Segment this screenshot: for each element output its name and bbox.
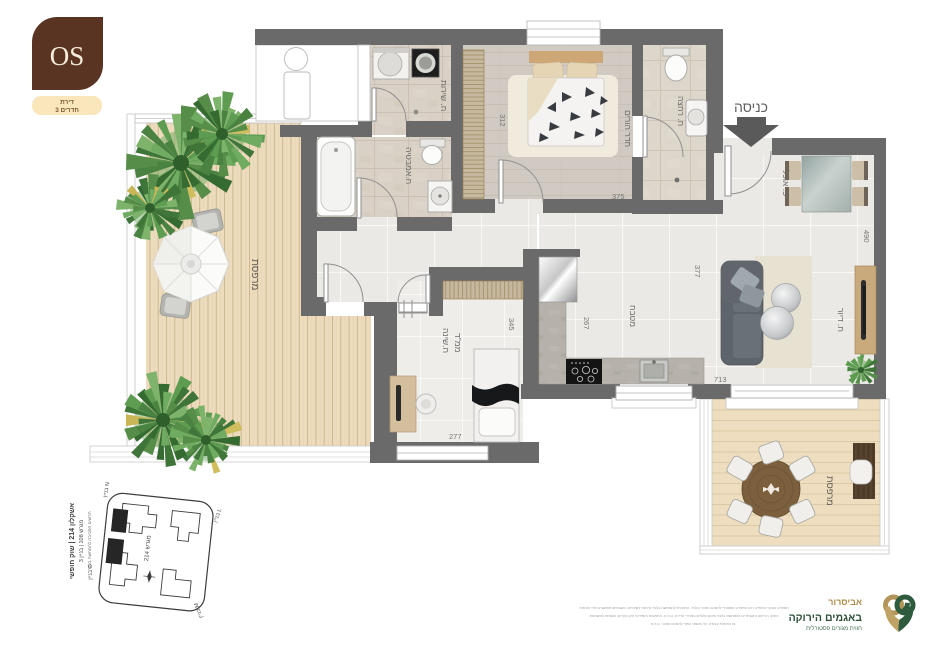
- svg-text:צו התחלת עבודה. כל האמור כפוף: צו התחלת עבודה. כל האמור כפוף להסכם המכר…: [651, 622, 736, 626]
- svg-text:277: 277: [449, 432, 462, 441]
- svg-text:3 חדרים: 3 חדרים: [55, 107, 79, 114]
- svg-text:345: 345: [507, 318, 516, 331]
- svg-text:מרפסת: מרפסת: [824, 476, 835, 506]
- svg-text:377: 377: [693, 265, 702, 278]
- svg-text:המפרט הטכני המחייב הינו המפרט: המפרט הטכני המחייב הינו המפרט המצורף להס…: [579, 606, 789, 610]
- svg-text:ח. רחצה: ח. רחצה: [676, 96, 686, 126]
- svg-text:תרשים הסביבה להמחשה בלבד: תרשים הסביבה להמחשה בלבד: [87, 511, 92, 570]
- svg-text:חדר הורים: חדר הורים: [623, 110, 633, 147]
- svg-text:חווית מגורים פסטורלית: חווית מגורים פסטורלית: [806, 625, 862, 632]
- svg-text:713: 713: [714, 375, 727, 384]
- svg-text:375: 375: [612, 192, 625, 201]
- svg-text:ח.אמבטיה: ח.אמבטיה: [404, 147, 414, 184]
- svg-text:490: 490: [862, 230, 871, 243]
- svg-text:החוק. הריהוט והאביזרים להמחשה: החוק. הריהוט והאביזרים להמחשה בלבד ואינם…: [589, 614, 779, 618]
- svg-text:מגרש 108 | בניין 3: מגרש 108 | בניין 3: [79, 519, 85, 562]
- svg-text:אביסרור: אביסרור: [828, 597, 862, 607]
- svg-text:267: 267: [582, 317, 591, 330]
- svg-text:מרפסת: מרפסת: [249, 259, 260, 291]
- svg-text:אשקלון 214 | שוק חופשי: אשקלון 214 | שוק חופשי: [68, 503, 76, 579]
- svg-text:ח.שינה: ח.שינה: [441, 328, 451, 353]
- svg-text:ח. דיור: ח. דיור: [836, 308, 846, 332]
- svg-text:כניסה: כניסה: [734, 99, 768, 115]
- svg-text:מטבח: מטבח: [628, 305, 638, 327]
- svg-text:פ. אוכל: פ. אוכל: [781, 170, 791, 196]
- svg-text:ח. שירות: ח. שירות: [439, 80, 449, 111]
- svg-text:באגמים הירוקה: באגמים הירוקה: [789, 612, 863, 624]
- svg-text:דירת: דירת: [60, 99, 74, 106]
- svg-text:312: 312: [498, 114, 507, 127]
- svg-text:OS: OS: [50, 41, 85, 71]
- svg-text:ממ"ד: ממ"ד: [453, 333, 463, 353]
